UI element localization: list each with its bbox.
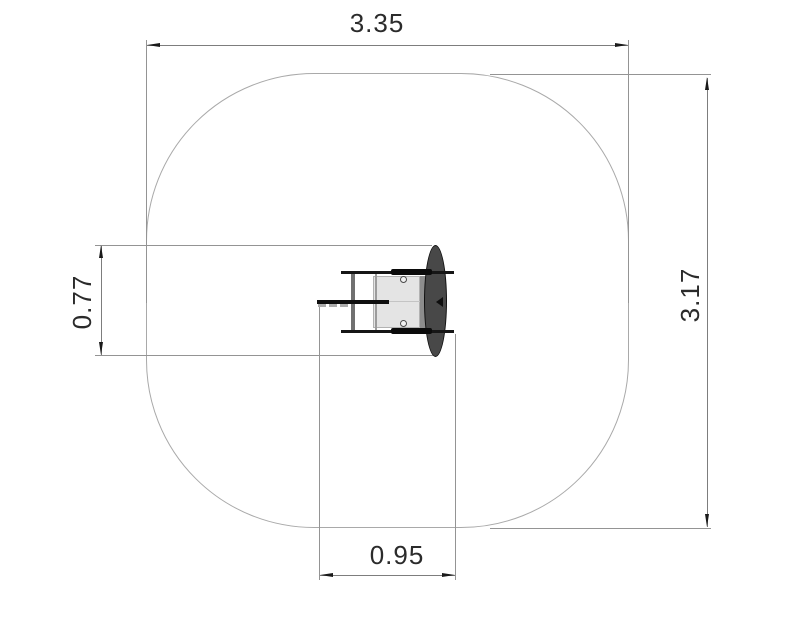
arrowhead-right-icon [442,573,455,577]
dim-equipment-width-label: 0.95 [347,539,447,571]
dim-equipment-width-line [320,575,455,576]
extension-line-equipment-depth-bottom [95,355,433,356]
dim-overall-width-line [147,45,628,46]
extension-line-overall-width-right [628,40,629,303]
equipment-seat-seam [389,301,420,302]
arrowhead-down-icon [99,342,103,355]
arrowhead-left-icon [320,573,333,577]
equipment-handlebar-top-grip [391,269,432,275]
extension-line-overall-width-left [146,40,147,303]
extension-line-equipment-width-right [455,334,456,580]
dim-overall-height-line [707,78,708,527]
dim-overall-width-label: 3.35 [327,7,427,39]
extension-line-overall-height-top [490,74,711,75]
arrowhead-right-icon [615,43,628,47]
drawing-canvas: 3.35 3.17 0.77 0.95 [0,0,800,618]
extension-line-equipment-depth-top [95,245,432,246]
equipment-handlebar-bottom-grip [391,328,432,334]
extension-line-overall-height-bottom [490,528,711,529]
dim-equipment-depth-label: 0.77 [66,247,98,357]
arrowhead-up-icon [705,77,709,90]
arrowhead-down-icon [705,514,709,527]
equipment-disc-notch [436,297,443,307]
equipment-footrest-shadow [318,304,351,307]
equipment-bolt-bottom [400,320,407,327]
dim-overall-height-label: 3.17 [674,240,706,350]
extension-line-equipment-width-left [319,306,320,580]
dim-equipment-depth-line [101,246,102,355]
arrowhead-up-icon [99,245,103,258]
equipment-bolt-top [400,276,407,283]
arrowhead-left-icon [147,43,160,47]
